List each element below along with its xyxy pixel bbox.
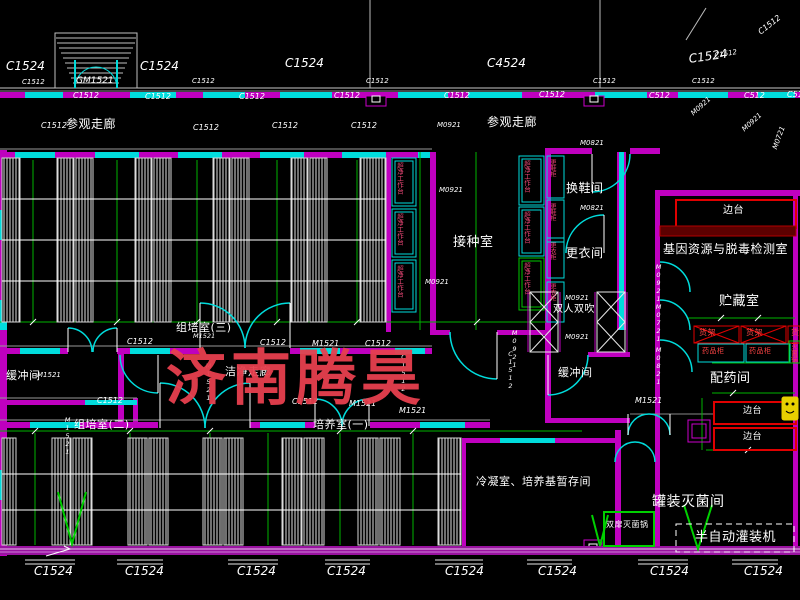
equipment-label: 药品柜	[749, 348, 772, 355]
code-label: C1512	[97, 397, 123, 405]
room-label: 培养室(一)	[313, 419, 369, 430]
code-label: M0921	[690, 96, 712, 117]
code-label: C1512	[192, 78, 215, 85]
code-label: M0921	[655, 263, 662, 303]
code-label: C1524	[650, 565, 689, 577]
equipment-label: 超净工作台	[523, 262, 530, 295]
code-label: C1512	[539, 91, 565, 99]
equipment-label: 货架	[699, 329, 716, 337]
code-label: C1524	[140, 60, 179, 72]
code-label: C1512	[73, 92, 99, 100]
code-label: C1512	[692, 78, 715, 85]
code-label: C512	[744, 92, 765, 100]
code-label: C1512	[366, 78, 389, 85]
room-label: 贮藏室	[719, 295, 760, 308]
equipment-label: 超净工作台	[396, 213, 403, 246]
equipment-label: 边台	[743, 407, 762, 416]
equipment-label: 双人双吹	[553, 305, 595, 315]
room-label: 组培室(二)	[74, 419, 130, 430]
equipment-label: 边台	[743, 433, 762, 442]
code-label: M0721	[655, 303, 662, 343]
code-label: M0921	[565, 295, 589, 302]
room-label: 罐装灭菌间	[652, 495, 725, 509]
code-label: C1512	[193, 124, 219, 132]
code-label: C1512	[272, 122, 298, 130]
code-label: C1512	[41, 122, 67, 130]
equipment-label: 边台	[723, 206, 744, 216]
room-label: 缓冲间	[6, 370, 41, 381]
code-label: C1512	[507, 350, 514, 390]
code-label: C1524	[445, 565, 484, 577]
room-label: 更衣间	[566, 247, 604, 259]
equipment-label: 灭菌锅	[790, 343, 797, 363]
room-label: 缓冲间	[558, 367, 593, 378]
code-label: C1524	[237, 565, 276, 577]
code-label: C1512	[444, 92, 470, 100]
code-label: C1512	[757, 14, 782, 36]
code-label: M0721	[772, 126, 787, 151]
code-label: C1524	[285, 57, 324, 69]
equipment-label: 超净工作台	[396, 265, 403, 298]
equipment-label: 更衣柜	[549, 283, 555, 301]
room-label: 参观走廊	[66, 118, 116, 130]
equipment-label: 货架	[746, 329, 763, 337]
code-label: C1512	[351, 122, 377, 130]
code-label: M1521	[64, 416, 71, 456]
code-label: C1524	[744, 565, 783, 577]
code-label: C512	[787, 91, 800, 99]
code-label: M0921	[439, 187, 463, 194]
equipment-label: 双扉灭菌锅	[606, 521, 649, 529]
code-label: M0921	[437, 122, 461, 129]
equipment-label: 药品柜	[702, 348, 725, 355]
room-label: 基因资源与脱毒检测室	[663, 243, 788, 255]
code-label: M0821	[655, 346, 662, 386]
code-label: M0921	[425, 279, 449, 286]
equipment-label: 超净工作台	[523, 160, 530, 193]
room-label: 接种室	[453, 236, 494, 249]
equipment-label: 超净工作台	[523, 211, 530, 244]
equipment-label: 货架	[791, 329, 800, 337]
code-label: C1512	[127, 338, 153, 346]
equipment-label: 超净工作台	[396, 162, 403, 195]
code-label: M0921	[565, 334, 589, 341]
code-label: C512	[649, 92, 670, 100]
code-label: C4524	[487, 57, 526, 69]
equipment-label: 更鞋柜	[549, 203, 555, 221]
code-label: C1524	[34, 565, 73, 577]
room-label: 冷凝室、培养基暂存间	[476, 476, 591, 487]
code-label: C1524	[538, 565, 577, 577]
code-label: GM1521	[76, 77, 114, 86]
code-label: C1524	[327, 565, 366, 577]
equipment-label: 更鞋柜	[549, 159, 555, 177]
code-label: C1512	[239, 93, 265, 101]
code-label: C1512	[593, 78, 616, 85]
equipment-label: 更衣柜	[549, 242, 555, 260]
label-layer: 参观走廊参观走廊组培室(三)接种室换鞋间更衣间缓冲间缓冲间洁净走廊组培室(二)培…	[0, 0, 800, 600]
room-label: 配药间	[710, 372, 751, 385]
code-label: M1521	[37, 372, 61, 379]
floorplan-canvas: 参观走廊参观走廊组培室(三)接种室换鞋间更衣间缓冲间缓冲间洁净走廊组培室(二)培…	[0, 0, 800, 600]
code-label: C1524	[6, 60, 45, 72]
code-label: M1521	[635, 397, 662, 405]
code-label: M0921	[741, 112, 763, 133]
code-label: C1512	[22, 79, 45, 86]
room-label: 参观走廊	[487, 116, 537, 128]
code-label: M0821	[580, 205, 604, 212]
code-label: C1512	[334, 92, 360, 100]
code-label: M0821	[580, 140, 604, 147]
room-label: 换鞋间	[566, 182, 604, 194]
code-label: C1512	[145, 93, 171, 101]
watermark: 济南腾昊	[166, 330, 426, 417]
code-label: C1524	[125, 565, 164, 577]
equipment-label: 半自动灌装机	[695, 531, 776, 544]
